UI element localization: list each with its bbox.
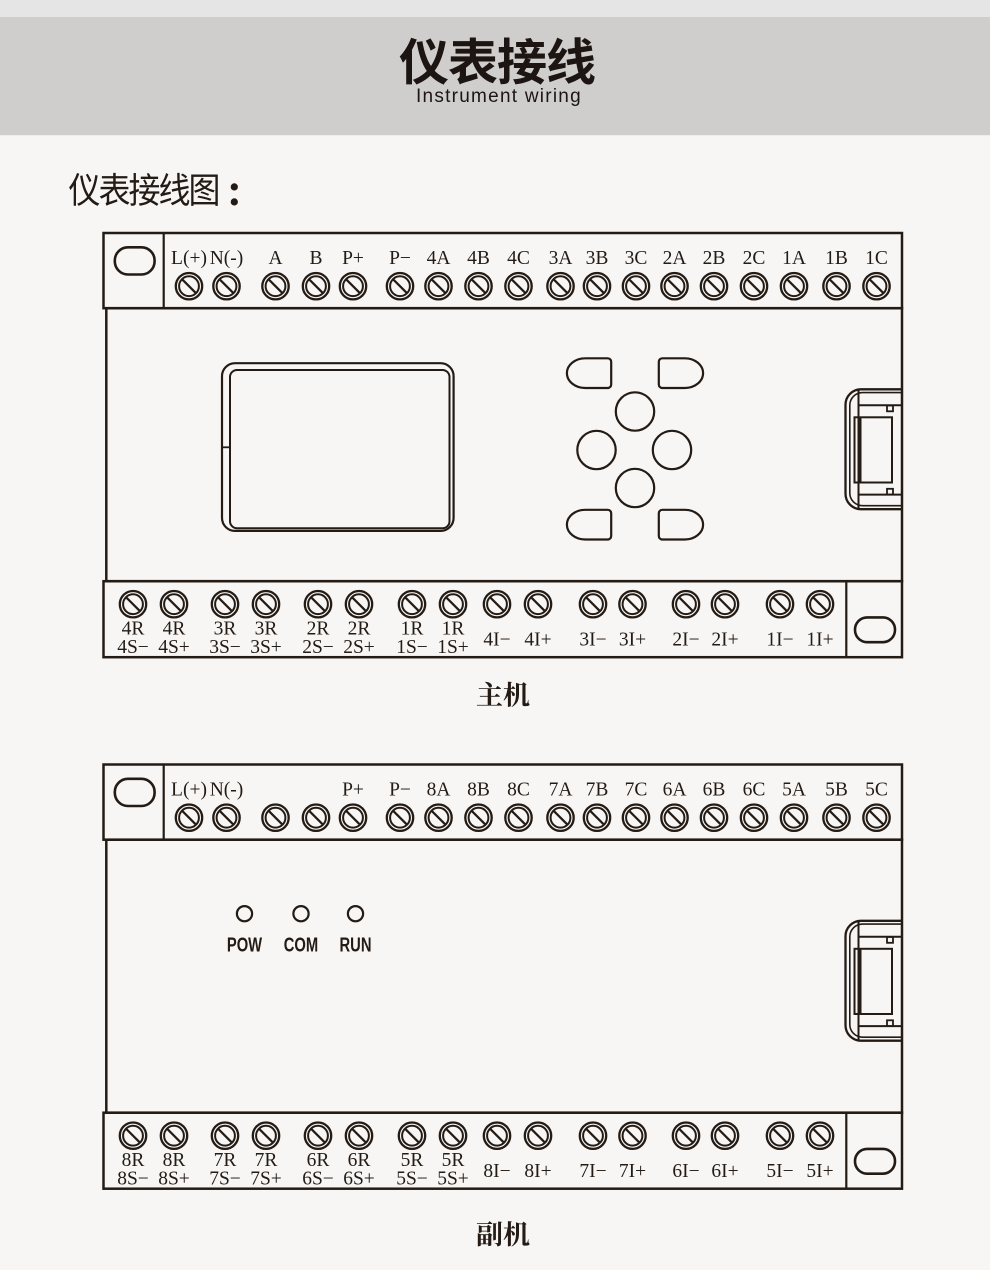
svg-text:2S+: 2S+ [343, 637, 375, 658]
svg-text:4A: 4A [427, 248, 451, 269]
svg-text:8I+: 8I+ [524, 1161, 551, 1182]
svg-text:2A: 2A [663, 248, 687, 269]
svg-text:6I+: 6I+ [711, 1161, 738, 1182]
svg-text:3A: 3A [549, 248, 573, 269]
svg-text:7S+: 7S+ [250, 1169, 282, 1190]
svg-text:4I+: 4I+ [524, 630, 551, 651]
svg-text:8B: 8B [467, 779, 490, 800]
svg-text:Instrument wiring: Instrument wiring [416, 86, 582, 107]
svg-text:2I+: 2I+ [711, 630, 738, 651]
svg-text:L(+): L(+) [171, 779, 207, 800]
svg-text:8S−: 8S− [117, 1169, 149, 1190]
svg-text:2S−: 2S− [302, 637, 334, 658]
svg-text:6B: 6B [703, 779, 726, 800]
svg-text:5I−: 5I− [766, 1161, 793, 1182]
svg-text:3B: 3B [586, 248, 609, 269]
svg-text:6S−: 6S− [302, 1169, 334, 1190]
svg-text:3I+: 3I+ [619, 630, 646, 651]
svg-text:7S−: 7S− [209, 1169, 241, 1190]
svg-text:1A: 1A [782, 248, 806, 269]
svg-text:1S+: 1S+ [437, 637, 469, 658]
svg-text:6C: 6C [743, 779, 766, 800]
svg-text:N(-): N(-) [210, 779, 244, 800]
svg-text:5C: 5C [865, 779, 888, 800]
svg-text:3S+: 3S+ [250, 637, 282, 658]
svg-text:7A: 7A [549, 779, 573, 800]
svg-text:8C: 8C [507, 779, 530, 800]
svg-text:4S+: 4S+ [158, 637, 190, 658]
svg-text:RUN: RUN [340, 933, 372, 956]
svg-text:7I+: 7I+ [619, 1161, 646, 1182]
svg-text:4C: 4C [507, 248, 530, 269]
svg-text:1I+: 1I+ [806, 630, 833, 651]
svg-text:P−: P− [389, 248, 411, 269]
svg-text:6A: 6A [663, 779, 687, 800]
svg-text:1B: 1B [825, 248, 848, 269]
svg-text:7I−: 7I− [579, 1161, 606, 1182]
svg-text:2B: 2B [703, 248, 726, 269]
svg-text:7B: 7B [586, 779, 609, 800]
svg-text:1S−: 1S− [396, 637, 428, 658]
svg-text:8A: 8A [427, 779, 451, 800]
svg-text:4S−: 4S− [117, 637, 149, 658]
svg-text:A: A [268, 248, 282, 269]
svg-text:B: B [309, 248, 322, 269]
svg-text:1I−: 1I− [766, 630, 793, 651]
svg-text:N(-): N(-) [210, 248, 244, 269]
svg-text:COM: COM [284, 933, 318, 956]
svg-text:7C: 7C [625, 779, 648, 800]
svg-text:4I−: 4I− [483, 630, 510, 651]
svg-text:5S−: 5S− [396, 1169, 428, 1190]
svg-text:8I−: 8I− [483, 1161, 510, 1182]
svg-text:L(+): L(+) [171, 248, 207, 269]
svg-text:4B: 4B [467, 248, 490, 269]
svg-text:5I+: 5I+ [806, 1161, 833, 1182]
svg-text:6S+: 6S+ [343, 1169, 375, 1190]
svg-text:3S−: 3S− [209, 637, 241, 658]
svg-text:6I−: 6I− [672, 1161, 699, 1182]
svg-text:1C: 1C [865, 248, 888, 269]
svg-text:2C: 2C [743, 248, 766, 269]
svg-text:5S+: 5S+ [437, 1169, 469, 1190]
svg-text:P+: P+ [342, 248, 364, 269]
svg-text:5B: 5B [825, 779, 848, 800]
svg-text:3I−: 3I− [579, 630, 606, 651]
svg-text:5A: 5A [782, 779, 806, 800]
svg-text:POW: POW [227, 933, 262, 956]
svg-text:2I−: 2I− [672, 630, 699, 651]
svg-text:P+: P+ [342, 779, 364, 800]
svg-text:3C: 3C [625, 248, 648, 269]
svg-text:P−: P− [389, 779, 411, 800]
svg-text:8S+: 8S+ [158, 1169, 190, 1190]
